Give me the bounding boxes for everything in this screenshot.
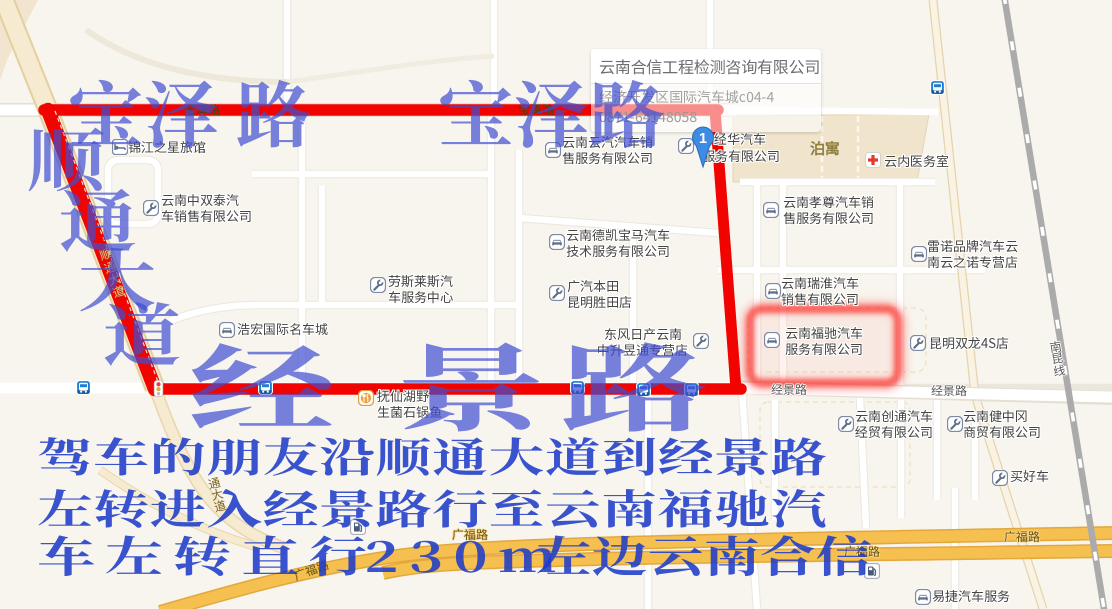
svg-text:1: 1 [699,131,707,147]
